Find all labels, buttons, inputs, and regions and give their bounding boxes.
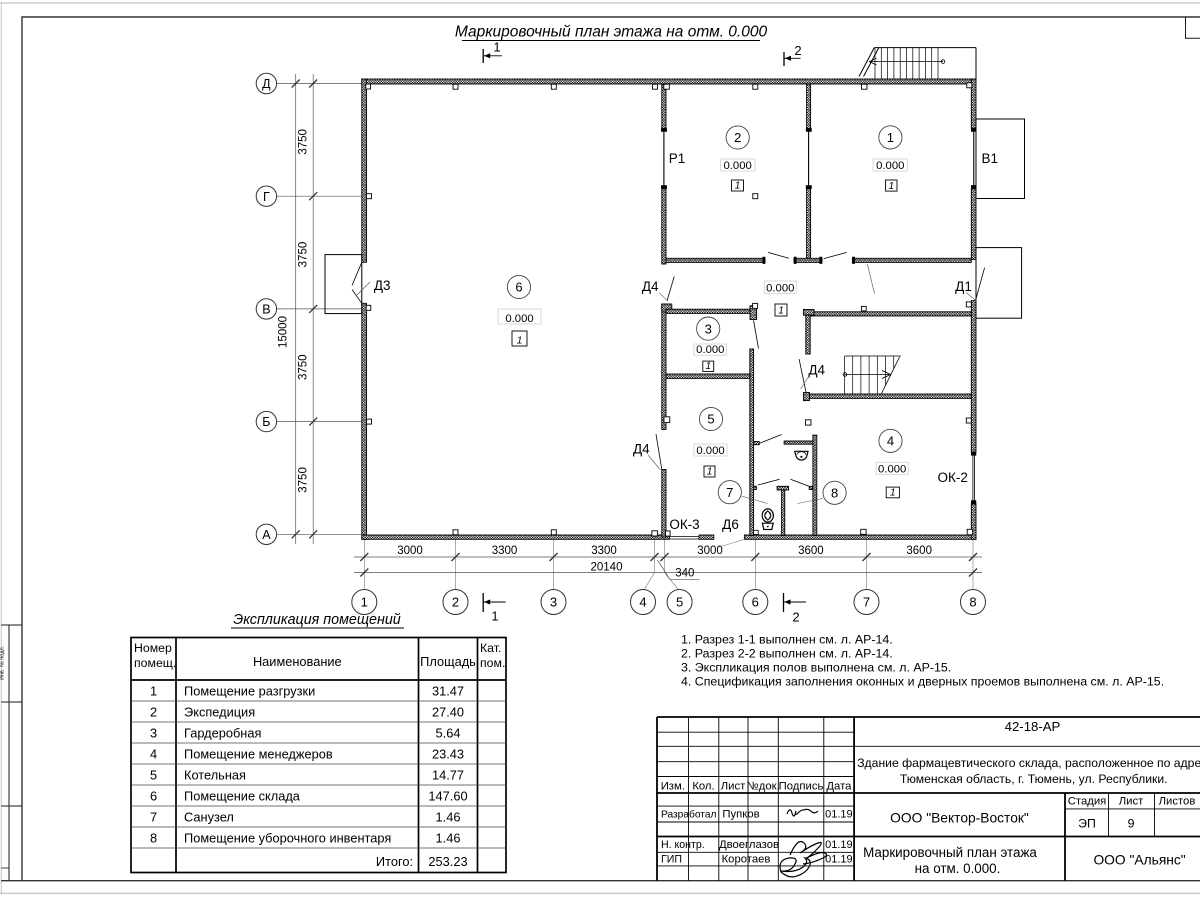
svg-text:0.000: 0.000 [724, 160, 752, 172]
svg-text:340: 340 [675, 568, 694, 580]
svg-text:Санузел: Санузел [184, 810, 234, 825]
svg-text:4. Спецификация заполнения око: 4. Спецификация заполнения оконных и две… [681, 675, 1164, 689]
svg-text:Помещение склада: Помещение склада [184, 789, 301, 804]
svg-text:4: 4 [150, 747, 157, 762]
svg-text:1: 1 [150, 684, 157, 699]
svg-text:5: 5 [150, 768, 157, 783]
svg-text:ГИП: ГИП [661, 854, 682, 866]
svg-text:3750: 3750 [298, 354, 310, 380]
svg-text:3600: 3600 [798, 545, 824, 557]
svg-text:1: 1 [705, 361, 711, 372]
svg-text:0.000: 0.000 [878, 464, 906, 476]
svg-text:Инв. № подл.: Инв. № подл. [0, 645, 6, 680]
svg-text:27.40: 27.40 [432, 705, 464, 720]
svg-text:1: 1 [887, 130, 894, 145]
svg-text:0.000: 0.000 [766, 282, 794, 294]
svg-text:Г: Г [263, 190, 270, 204]
svg-text:Д4: Д4 [808, 363, 825, 378]
svg-text:3300: 3300 [591, 545, 617, 557]
svg-text:6: 6 [515, 280, 522, 295]
svg-text:Лист: Лист [1119, 796, 1144, 808]
svg-text:№док.: №док. [747, 781, 780, 793]
svg-text:6: 6 [752, 595, 759, 610]
svg-text:Кол.: Кол. [692, 781, 714, 793]
svg-text:253.23: 253.23 [428, 854, 467, 869]
svg-text:14.77: 14.77 [432, 768, 464, 783]
svg-text:01.19: 01.19 [825, 839, 853, 851]
svg-text:8: 8 [150, 831, 157, 846]
svg-text:ЭП: ЭП [1078, 817, 1096, 831]
svg-text:6: 6 [150, 789, 157, 804]
svg-text:Тюменская область, г. Тюмень,: Тюменская область, г. Тюмень, ул. Респуб… [900, 772, 1168, 786]
svg-text:5.64: 5.64 [436, 726, 461, 741]
svg-text:42-18-АР: 42-18-АР [1005, 719, 1061, 734]
svg-text:3750: 3750 [298, 242, 310, 268]
svg-text:3750: 3750 [298, 129, 310, 155]
svg-text:Помещение менеджеров: Помещение менеджеров [184, 747, 333, 762]
svg-text:3: 3 [705, 321, 712, 336]
svg-text:1: 1 [707, 467, 713, 478]
svg-text:Б: Б [262, 415, 270, 429]
svg-text:Номер: Номер [134, 641, 172, 655]
svg-text:3000: 3000 [397, 545, 423, 557]
svg-text:0.000: 0.000 [696, 344, 724, 356]
svg-text:ОК-2: ОК-2 [938, 470, 968, 485]
svg-text:31.47: 31.47 [432, 684, 464, 699]
svg-text:5: 5 [676, 595, 683, 610]
svg-text:Кат.: Кат. [480, 641, 501, 655]
svg-text:2: 2 [452, 595, 459, 610]
svg-text:Подпись: Подпись [779, 781, 824, 793]
svg-text:1: 1 [889, 181, 895, 192]
svg-text:ОК-3: ОК-3 [669, 517, 699, 532]
svg-text:0.000: 0.000 [876, 160, 904, 172]
svg-text:1: 1 [735, 181, 741, 192]
svg-text:Здание фармацевтического склад: Здание фармацевтического склада, располо… [857, 756, 1200, 770]
svg-text:Экспедиция: Экспедиция [184, 705, 255, 720]
svg-text:В1: В1 [982, 151, 999, 166]
svg-text:2: 2 [792, 610, 799, 625]
svg-text:4: 4 [639, 595, 646, 610]
svg-text:23.43: 23.43 [432, 747, 464, 762]
svg-text:Маркировочный план этажа на от: Маркировочный план этажа на отм. 0.000 [455, 24, 768, 41]
svg-text:15000: 15000 [278, 316, 290, 348]
svg-text:А: А [262, 528, 271, 542]
svg-text:Стадия: Стадия [1068, 796, 1107, 808]
svg-text:Маркировочный план этажа: Маркировочный план этажа [863, 845, 1037, 860]
svg-text:8: 8 [831, 486, 838, 501]
svg-text:Помещение уборочного инвентаря: Помещение уборочного инвентаря [184, 831, 391, 846]
svg-text:Дата: Дата [826, 781, 852, 793]
svg-text:3600: 3600 [906, 545, 932, 557]
svg-text:2: 2 [150, 705, 157, 720]
svg-text:20140: 20140 [591, 561, 623, 573]
svg-text:1: 1 [778, 306, 784, 317]
svg-text:7: 7 [150, 810, 157, 825]
svg-text:Изм.: Изм. [661, 781, 685, 793]
svg-text:2. Разрез 2-2 выполнен см. л.: 2. Разрез 2-2 выполнен см. л. АР-14. [681, 647, 893, 661]
svg-text:Разработал: Разработал [661, 809, 717, 821]
svg-text:1: 1 [517, 336, 523, 347]
svg-text:на отм. 0.000.: на отм. 0.000. [915, 861, 1001, 876]
svg-text:Р1: Р1 [669, 151, 686, 166]
svg-text:3: 3 [150, 726, 157, 741]
svg-text:4: 4 [887, 434, 894, 449]
svg-text:1.46: 1.46 [436, 810, 461, 825]
svg-text:пом.: пом. [480, 656, 505, 670]
svg-text:Пупков: Пупков [722, 809, 759, 821]
svg-text:Коротаев: Коротаев [722, 854, 771, 866]
svg-text:Н. контр.: Н. контр. [661, 839, 705, 851]
svg-text:Площадь: Площадь [420, 654, 476, 669]
svg-text:3750: 3750 [298, 467, 310, 493]
svg-text:Экспликация помещений: Экспликация помещений [233, 612, 400, 628]
svg-text:Гардеробная: Гардеробная [184, 726, 261, 741]
svg-text:1: 1 [361, 595, 368, 610]
svg-text:Наименование: Наименование [253, 654, 342, 669]
svg-text:2: 2 [734, 130, 741, 145]
svg-text:Листов: Листов [1159, 796, 1196, 808]
svg-text:147.60: 147.60 [428, 789, 467, 804]
svg-text:1: 1 [493, 40, 500, 55]
svg-text:1: 1 [491, 609, 498, 624]
svg-text:1: 1 [890, 488, 896, 499]
svg-text:1. Разрез 1-1 выполнен см. л.: 1. Разрез 1-1 выполнен см. л. АР-14. [681, 633, 893, 647]
svg-text:Д4: Д4 [633, 442, 650, 457]
svg-text:Д: Д [262, 77, 271, 91]
svg-text:Помещение разгрузки: Помещение разгрузки [184, 684, 315, 699]
svg-text:5: 5 [707, 412, 714, 427]
svg-text:0.000: 0.000 [505, 313, 533, 325]
svg-text:Д6: Д6 [722, 517, 739, 532]
svg-text:7: 7 [863, 595, 870, 610]
svg-text:01.19: 01.19 [825, 809, 853, 821]
svg-text:2: 2 [794, 43, 801, 58]
svg-text:3. Экспликация полов выполнена: 3. Экспликация полов выполнена см. л. АР… [681, 661, 951, 675]
svg-text:Котельная: Котельная [184, 768, 246, 783]
svg-text:Д3: Д3 [374, 278, 391, 293]
svg-text:Двоеглазов: Двоеглазов [719, 839, 779, 851]
svg-text:1.46: 1.46 [436, 831, 461, 846]
svg-text:Д1: Д1 [955, 279, 972, 294]
svg-text:9: 9 [1128, 817, 1135, 831]
svg-text:Итого:: Итого: [376, 854, 413, 869]
svg-text:8: 8 [969, 595, 976, 610]
svg-text:помещ.: помещ. [134, 656, 176, 670]
svg-text:ООО "Вектор-Восток": ООО "Вектор-Восток" [890, 811, 1029, 826]
svg-text:3: 3 [550, 595, 557, 610]
svg-text:01.19: 01.19 [825, 854, 853, 866]
svg-text:Лист: Лист [721, 781, 746, 793]
svg-text:0.000: 0.000 [696, 445, 724, 457]
svg-text:7: 7 [726, 485, 733, 500]
svg-text:ООО "Альянс": ООО "Альянс" [1093, 853, 1185, 868]
svg-text:Д4: Д4 [642, 279, 659, 294]
svg-text:3300: 3300 [492, 545, 518, 557]
svg-text:В: В [262, 303, 270, 317]
